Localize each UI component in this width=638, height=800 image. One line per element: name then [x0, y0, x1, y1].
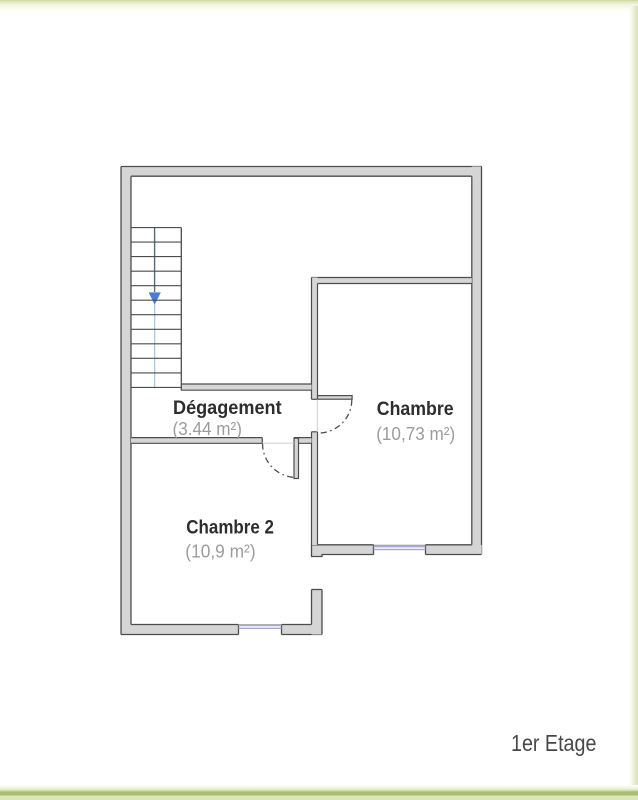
svg-text:Dégagement: Dégagement: [173, 397, 282, 419]
svg-text:1er Etage: 1er Etage: [511, 730, 596, 756]
svg-text:(10,9 m²): (10,9 m²): [185, 541, 255, 562]
svg-text:Chambre 2: Chambre 2: [186, 517, 274, 539]
svg-text:(3.44 m²): (3.44 m²): [173, 418, 242, 439]
svg-text:Chambre: Chambre: [377, 398, 454, 420]
svg-text:(10,73 m²): (10,73 m²): [376, 423, 455, 444]
